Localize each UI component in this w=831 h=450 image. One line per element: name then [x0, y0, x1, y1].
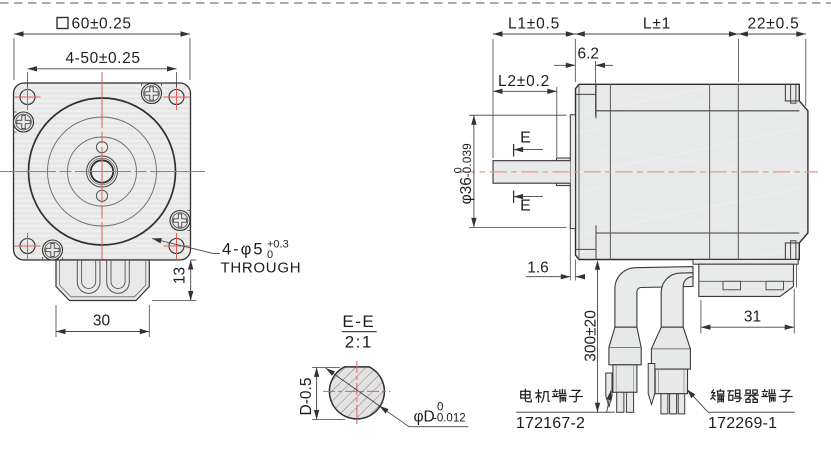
svg-text:2:1: 2:1 — [345, 333, 373, 352]
svg-text:L2±0.2: L2±0.2 — [498, 73, 550, 90]
svg-text:172167-2: 172167-2 — [516, 415, 585, 432]
svg-text:φD: φD — [414, 409, 435, 426]
svg-text:D-0.5: D-0.5 — [298, 378, 315, 416]
svg-text:φ36: φ36 — [458, 177, 475, 204]
svg-text:4-50±0.25: 4-50±0.25 — [65, 50, 140, 67]
svg-text:THROUGH: THROUGH — [221, 260, 302, 277]
svg-text:E-E: E-E — [342, 312, 375, 331]
svg-text:60±0.25: 60±0.25 — [72, 16, 132, 33]
svg-text:-0.012: -0.012 — [433, 413, 466, 425]
svg-text:E: E — [520, 130, 531, 147]
svg-text:0: 0 — [437, 402, 443, 414]
svg-text:31: 31 — [744, 309, 761, 326]
svg-text:30: 30 — [93, 313, 111, 330]
svg-text:1.6: 1.6 — [527, 260, 549, 277]
svg-text:172269-1: 172269-1 — [708, 415, 777, 432]
svg-text:300±20: 300±20 — [583, 310, 600, 362]
svg-text:6.2: 6.2 — [578, 46, 600, 63]
svg-text:4-φ5: 4-φ5 — [222, 241, 265, 259]
svg-text:13: 13 — [171, 267, 188, 284]
svg-text:L1±0.5: L1±0.5 — [508, 16, 560, 33]
svg-text:22±0.5: 22±0.5 — [747, 16, 799, 33]
svg-text:0: 0 — [452, 167, 464, 173]
svg-text:L±1: L±1 — [643, 16, 671, 33]
svg-text:E: E — [520, 198, 531, 215]
